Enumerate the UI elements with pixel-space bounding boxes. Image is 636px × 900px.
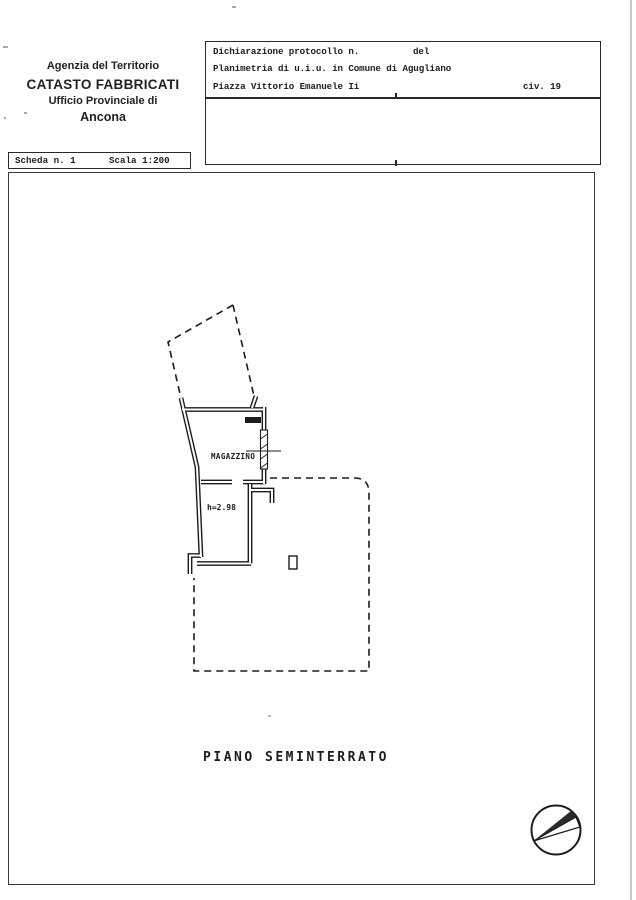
scan-speck (268, 715, 271, 717)
scan-speck (24, 112, 27, 114)
wall-lintel-block (245, 417, 261, 423)
north-arrow-icon (532, 806, 581, 855)
floor-title: PIANO SEMINTERRATO (203, 750, 389, 765)
scan-speck (4, 117, 6, 119)
room-label: MAGAZZINO (211, 452, 255, 461)
courtyard-boundary-left (168, 305, 233, 398)
scan-edge-line (630, 0, 632, 900)
room-height-label: h=2.98 (207, 503, 236, 512)
floor-plan-drawing: MAGAZZINO h=2.98 PIANO SEMINTERRATO (0, 0, 636, 900)
pillar-rect (289, 556, 297, 569)
scan-speck (3, 46, 8, 48)
window-opening (261, 430, 268, 469)
compass-open-wedge (534, 817, 581, 841)
cadastral-document-page: Agenzia del Territorio CATASTO FABBRICAT… (0, 0, 636, 900)
courtyard-boundary-right (233, 305, 254, 396)
scan-speck (232, 6, 236, 8)
